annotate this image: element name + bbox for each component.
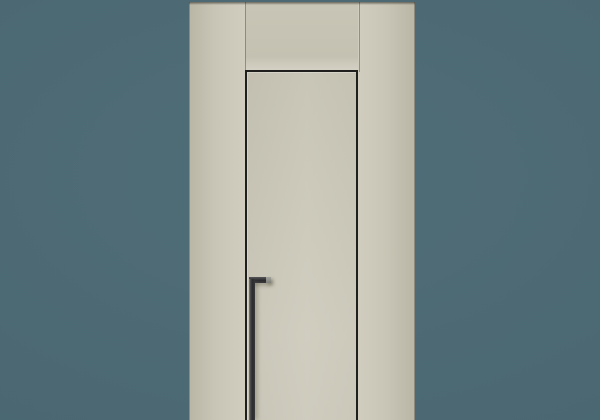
wall-top-edge-shadow (189, 2, 415, 5)
panel-seam-right (359, 2, 360, 72)
door-reveal-gap (245, 70, 358, 420)
wall-panel-right (358, 2, 415, 420)
wall-paneling (189, 2, 415, 420)
handle-vertical-bar (249, 279, 255, 420)
transom-panel (245, 2, 359, 71)
door-product-render (0, 0, 600, 420)
panel-seam-left (245, 2, 246, 72)
wall-panel-left (189, 2, 245, 420)
door-slab (247, 72, 356, 420)
handle-mount-plate (266, 277, 271, 283)
